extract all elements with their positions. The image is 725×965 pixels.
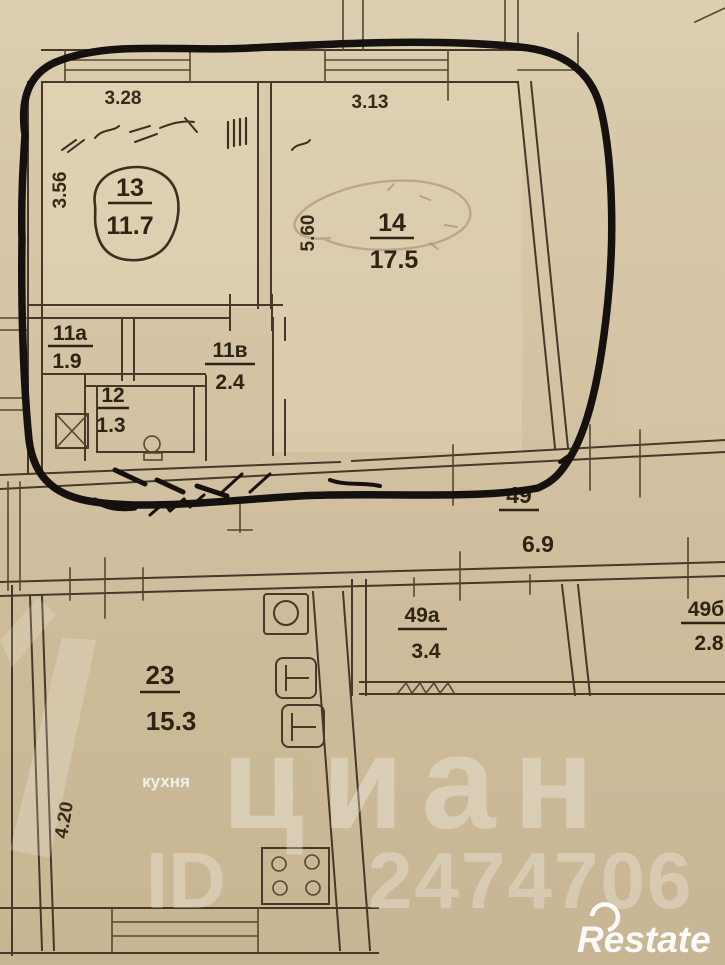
cian-watermark: циан [222, 709, 612, 857]
room-11a-label: 11а 1.9 [48, 322, 93, 373]
listing-id-label-watermark: ID [146, 836, 226, 925]
restate-logo-text: Restate [577, 919, 711, 960]
dimension-room13-width: 3.28 [105, 88, 142, 109]
listing-id-number-watermark: 2474706 [368, 836, 693, 925]
kitchen-caption: кухня [142, 772, 190, 791]
room-49b-label: 49б 2.8 [681, 598, 725, 655]
dimension-room14-depth: 5.60 [298, 215, 319, 252]
room-49a-area: 3.4 [411, 640, 441, 663]
room-49b-area: 2.8 [694, 632, 724, 655]
room-11v-number: 11в [212, 339, 247, 362]
room-13-number: 13 [116, 174, 144, 202]
wall-corridor-bottom [0, 562, 725, 596]
wall-13-14 [258, 82, 271, 308]
room-12-label: 12 1.3 [96, 384, 129, 437]
wall-49a-49b [352, 580, 725, 695]
floorplan-photo: 13 11.7 14 17.5 11а 1.9 11в 2.4 12 1.3 4… [0, 0, 725, 965]
room-11a-area: 1.9 [52, 350, 81, 373]
room-11v-label: 11в 2.4 [205, 339, 255, 394]
room-14-area: 17.5 [370, 246, 419, 274]
room-49a-label: 49а 3.4 [398, 604, 447, 663]
wall-left-edge-mid [8, 482, 20, 590]
toilet-icon [144, 436, 162, 460]
floorplan-svg: 13 11.7 14 17.5 11а 1.9 11в 2.4 12 1.3 4… [0, 0, 725, 965]
room-13-area: 11.7 [106, 212, 153, 240]
room-49b-number: 49б [688, 598, 724, 621]
room-49a-number: 49а [404, 604, 439, 627]
room-11v-area: 2.4 [215, 371, 245, 394]
wall-hatch-marks [398, 683, 454, 693]
wall-14-right [518, 82, 568, 448]
ventilation-shaft-icon [56, 414, 88, 448]
dimension-room13-depth: 3.56 [50, 172, 71, 209]
room-12-number: 12 [101, 384, 124, 407]
dimension-room14-width: 3.13 [352, 92, 389, 113]
room-11a-number: 11а [53, 322, 87, 345]
room-12-area: 1.3 [96, 414, 125, 437]
room-23-area: 15.3 [146, 706, 197, 736]
room-49-area: 6.9 [522, 531, 554, 557]
room-14-number: 14 [378, 209, 406, 237]
room-23-number: 23 [146, 660, 175, 690]
